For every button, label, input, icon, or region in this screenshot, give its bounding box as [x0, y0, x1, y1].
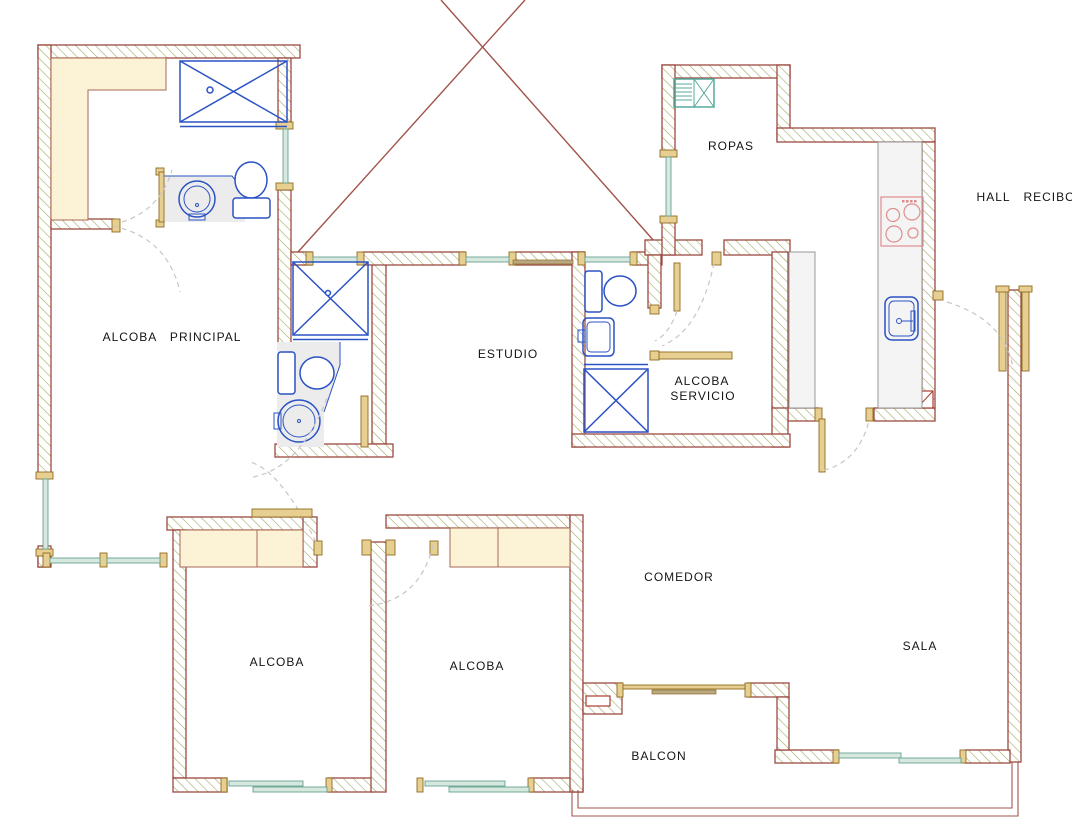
kitchen-counter-east — [878, 142, 922, 408]
window-principal-south — [43, 553, 167, 567]
door-swing-kitchen — [824, 421, 869, 470]
room-label-ropas: ROPAS — [708, 139, 754, 153]
bathroom-master — [164, 61, 287, 222]
door-swing-corridor — [662, 263, 714, 346]
room-label-alcoba-principal: ALCOBA PRINCIPAL — [103, 330, 242, 344]
room-label-alcoba-servicio-1: ALCOBA — [675, 374, 730, 388]
room-label-balcon: BALCON — [631, 749, 686, 763]
toilet-service — [585, 271, 636, 312]
window-ropas-west — [660, 150, 677, 223]
closet-alcoba-1 — [180, 530, 303, 567]
floor-plan-canvas: ALCOBA PRINCIPAL ESTUDIO ROPAS HALL RECI… — [0, 0, 1072, 833]
door-swing-principal — [113, 226, 180, 292]
room-label-estudio: ESTUDIO — [478, 347, 538, 361]
door-leaf-kitchen — [819, 419, 825, 472]
sliding-door-balcon — [617, 683, 751, 697]
door-leaf-alcoba-servicio — [659, 352, 732, 359]
window-principal-corner — [36, 472, 53, 556]
void-cross — [298, 0, 662, 252]
room-label-alcoba-1: ALCOBA — [250, 655, 305, 669]
closet-alcoba-2 — [450, 528, 570, 567]
shower-service — [584, 365, 648, 433]
window-master-east — [276, 122, 293, 190]
room-label-comedor: COMEDOR — [644, 570, 714, 584]
window-estudio-1 — [306, 252, 364, 265]
window-bano-servicio — [578, 252, 637, 265]
closet-master — [51, 58, 166, 220]
toilet-master — [233, 162, 270, 218]
window-sala-south — [833, 750, 966, 763]
room-label-alcoba-servicio-2: SERVICIO — [670, 389, 735, 403]
shower-hall — [293, 262, 368, 340]
door-leaf-bath-hall — [361, 396, 368, 447]
shower-master — [180, 61, 287, 127]
room-label-alcoba-2: ALCOBA — [450, 659, 505, 673]
kitchen-counter-west — [789, 252, 815, 408]
kitchen-counters — [789, 142, 922, 408]
closets — [51, 58, 570, 567]
washer-icon — [674, 79, 714, 107]
balcony-railing — [572, 762, 1018, 816]
bathroom-service — [578, 271, 648, 432]
room-label-sala: SALA — [903, 639, 938, 653]
room-label-hall-recibo: HALL RECIBO — [977, 190, 1072, 204]
window-alcoba-2-south — [417, 778, 534, 792]
window-alcoba-1-south — [221, 778, 332, 792]
sink-service — [578, 318, 614, 356]
door-leaf-bath-service — [674, 263, 680, 311]
door-swing-bath-service — [655, 311, 677, 341]
walls — [38, 45, 1021, 792]
floor-plan-drawing: ALCOBA PRINCIPAL ESTUDIO ROPAS HALL RECI… — [0, 0, 1072, 833]
